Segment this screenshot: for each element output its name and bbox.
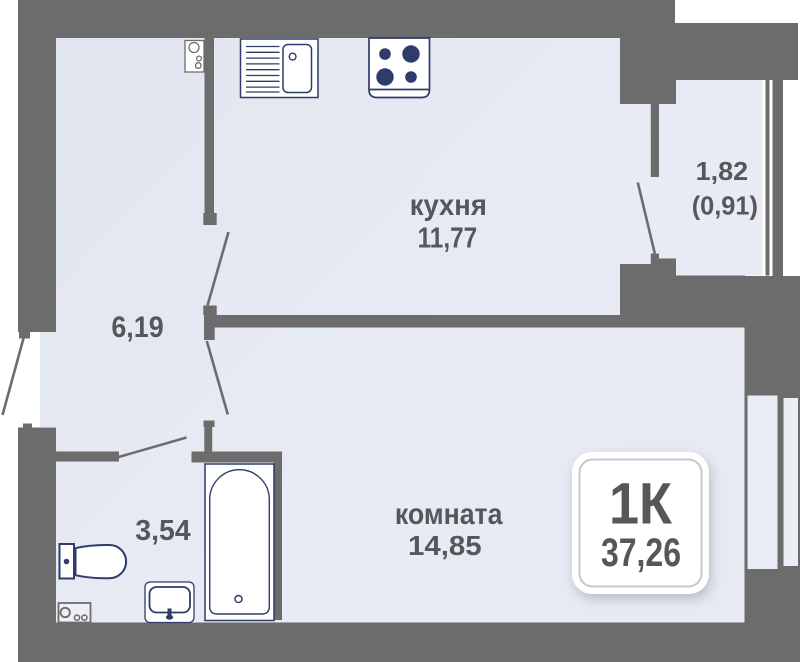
svg-text:комната: комната (395, 498, 503, 531)
svg-text:(0,91): (0,91) (692, 191, 758, 221)
svg-text:1,82: 1,82 (696, 156, 749, 186)
svg-text:6,19: 6,19 (111, 311, 163, 344)
svg-text:37,26: 37,26 (601, 531, 681, 575)
svg-text:3,54: 3,54 (135, 515, 190, 547)
svg-text:1К: 1К (609, 472, 673, 537)
svg-text:14,85: 14,85 (408, 530, 482, 561)
svg-text:11,77: 11,77 (418, 222, 478, 254)
svg-text:кухня: кухня (410, 189, 487, 222)
